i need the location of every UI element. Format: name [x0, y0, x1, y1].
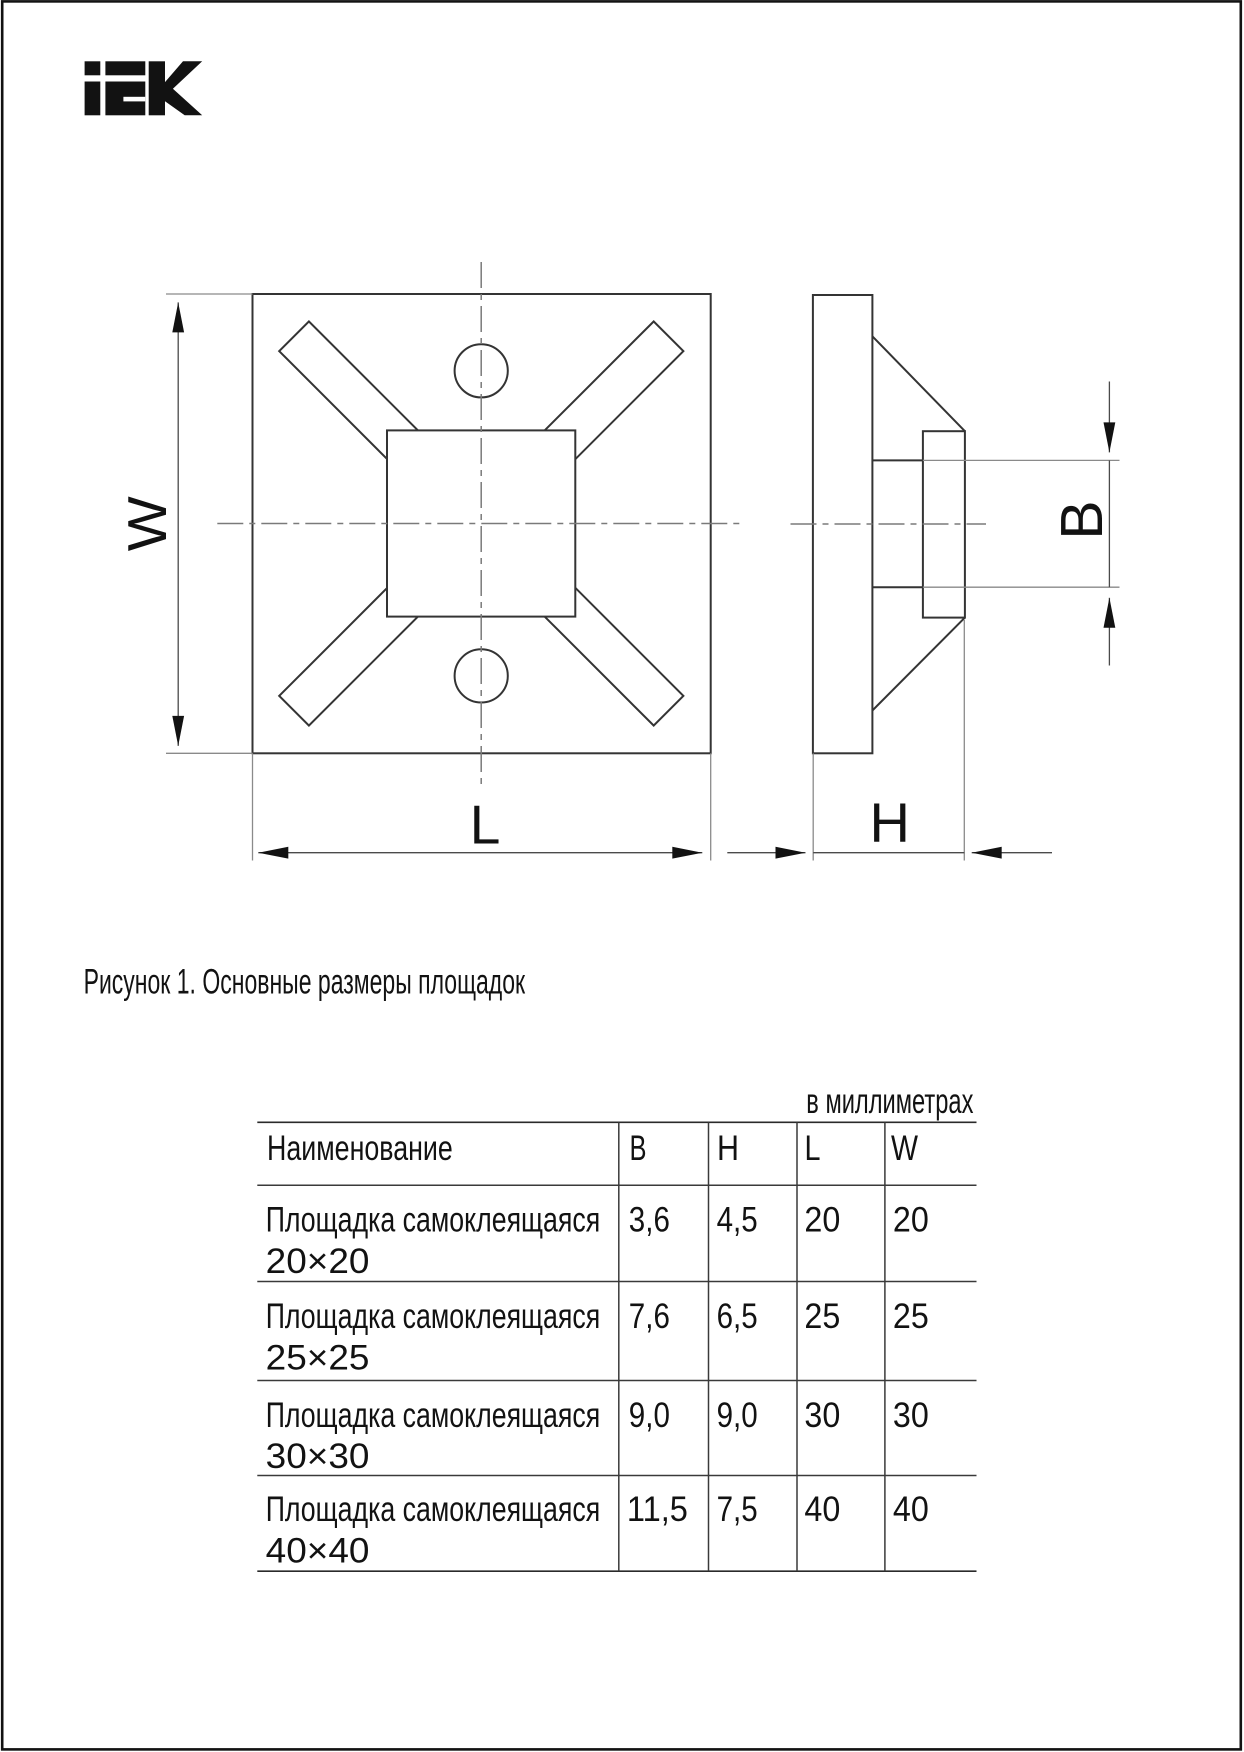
svg-text:Наименование: Наименование	[267, 1128, 453, 1168]
svg-text:20×20: 20×20	[266, 1241, 370, 1281]
svg-text:9,0: 9,0	[717, 1395, 758, 1435]
svg-text:9,0: 9,0	[629, 1395, 670, 1435]
svg-text:W: W	[891, 1128, 918, 1168]
svg-text:Площадка самоклеящаяся: Площадка самоклеящаяся	[266, 1296, 601, 1336]
svg-text:4,5: 4,5	[717, 1200, 758, 1240]
svg-text:20: 20	[804, 1200, 840, 1240]
svg-text:W: W	[116, 496, 178, 551]
svg-text:B: B	[630, 1128, 647, 1168]
svg-text:H: H	[717, 1128, 739, 1168]
svg-text:30: 30	[893, 1395, 929, 1435]
svg-text:L: L	[805, 1128, 821, 1168]
svg-text:L: L	[470, 794, 501, 856]
svg-text:H: H	[869, 791, 909, 854]
svg-text:25×25: 25×25	[266, 1338, 370, 1378]
svg-text:7,6: 7,6	[629, 1296, 670, 1336]
svg-text:30: 30	[804, 1395, 840, 1435]
svg-text:в миллиметрах: в миллиметрах	[806, 1082, 973, 1121]
svg-text:40: 40	[804, 1489, 840, 1529]
svg-text:25: 25	[804, 1296, 840, 1336]
svg-text:30×30: 30×30	[266, 1436, 370, 1476]
svg-text:40: 40	[893, 1489, 929, 1529]
svg-text:40×40: 40×40	[266, 1531, 370, 1571]
svg-text:7,5: 7,5	[717, 1489, 758, 1529]
svg-text:6,5: 6,5	[717, 1296, 758, 1336]
svg-text:Площадка самоклеящаяся: Площадка самоклеящаяся	[266, 1489, 601, 1529]
svg-text:Площадка самоклеящаяся: Площадка самоклеящаяся	[266, 1200, 601, 1240]
svg-text:11,5: 11,5	[627, 1489, 688, 1529]
svg-text:B: B	[1049, 500, 1115, 539]
svg-text:20: 20	[893, 1200, 929, 1240]
svg-text:Рисунок 1. Основные размеры пл: Рисунок 1. Основные размеры площадок	[84, 963, 526, 1002]
svg-text:3,6: 3,6	[629, 1200, 670, 1240]
svg-text:25: 25	[893, 1296, 929, 1336]
svg-text:Площадка самоклеящаяся: Площадка самоклеящаяся	[266, 1395, 601, 1435]
